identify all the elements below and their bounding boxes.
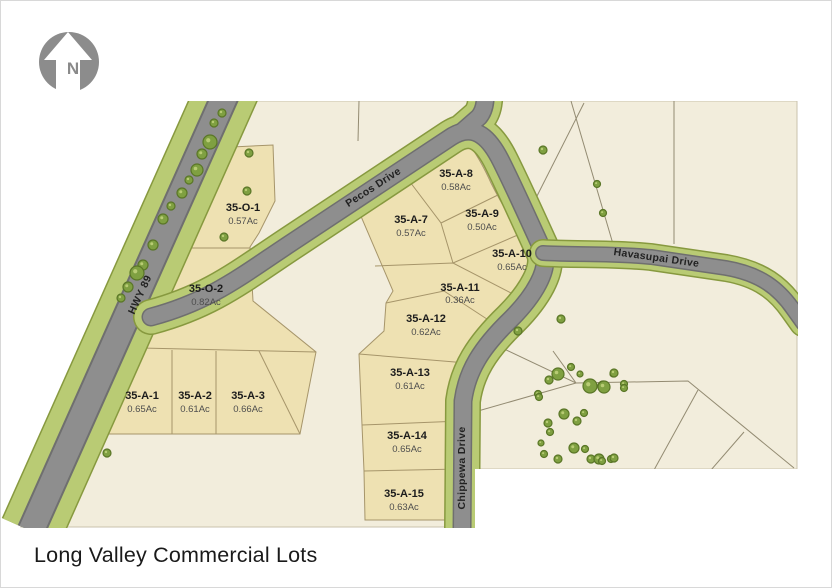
lot-acreage: 0.61Ac bbox=[180, 404, 210, 415]
lot-label: 35-O-1 bbox=[226, 202, 260, 214]
tree-icon bbox=[568, 364, 575, 371]
tree-highlight bbox=[516, 329, 518, 331]
tree-icon bbox=[220, 233, 228, 241]
lot-label: 35-A-1 bbox=[125, 390, 159, 402]
lot-label: 35-A-14 bbox=[387, 430, 428, 442]
lot-label: 35-A-12 bbox=[406, 313, 446, 325]
lot-label: 35-A-8 bbox=[439, 168, 473, 180]
tree-icon bbox=[536, 394, 543, 401]
tree-highlight bbox=[169, 204, 171, 206]
north-arrow-letter: N bbox=[67, 59, 79, 78]
tree-highlight bbox=[583, 447, 585, 449]
tree-highlight bbox=[212, 121, 214, 123]
tree-highlight bbox=[222, 235, 224, 237]
tree-highlight bbox=[586, 382, 590, 386]
tree-icon bbox=[538, 440, 544, 446]
lot-label: 35-O-2 bbox=[189, 283, 223, 295]
tree-icon bbox=[559, 409, 569, 419]
tree-highlight bbox=[125, 284, 128, 287]
plat-map: 35-O-1 0.57Ac 35-O-2 0.82Ac 35-A-1 0.65A… bbox=[1, 1, 832, 588]
tree-highlight bbox=[595, 182, 597, 184]
tree-highlight bbox=[569, 365, 571, 367]
tree-icon bbox=[117, 294, 125, 302]
tree-highlight bbox=[622, 382, 624, 384]
tree-icon bbox=[621, 385, 628, 392]
lot-acreage: 0.36Ac bbox=[445, 295, 475, 306]
tree-icon bbox=[610, 454, 618, 462]
lot-label: 35-A-10 bbox=[492, 248, 532, 260]
lot-acreage: 0.65Ac bbox=[497, 262, 527, 273]
tree-icon bbox=[541, 451, 548, 458]
tree-icon bbox=[210, 119, 218, 127]
tree-highlight bbox=[539, 441, 541, 443]
tree-highlight bbox=[546, 421, 548, 423]
tree-highlight bbox=[206, 138, 210, 142]
lot-acreage: 0.61Ac bbox=[395, 381, 425, 392]
lot-acreage: 0.57Ac bbox=[228, 216, 258, 227]
tree-icon bbox=[554, 455, 562, 463]
tree-icon bbox=[243, 187, 251, 195]
tree-highlight bbox=[578, 372, 580, 374]
lot-label: 35-A-7 bbox=[394, 214, 428, 226]
tree-highlight bbox=[140, 262, 143, 265]
tree-highlight bbox=[548, 430, 550, 432]
plat-map-page: 35-O-1 0.57Ac 35-O-2 0.82Ac 35-A-1 0.65A… bbox=[0, 0, 832, 588]
tree-icon bbox=[599, 458, 606, 465]
lot-acreage: 0.57Ac bbox=[396, 228, 426, 239]
tree-highlight bbox=[187, 178, 189, 180]
lot-label: 35-A-3 bbox=[231, 390, 265, 402]
tree-highlight bbox=[612, 371, 614, 373]
tree-highlight bbox=[247, 151, 249, 153]
tree-icon bbox=[103, 449, 111, 457]
map-title: Long Valley Commercial Lots bbox=[34, 543, 317, 568]
tree-icon bbox=[547, 429, 554, 436]
tree-icon bbox=[191, 164, 203, 176]
tree-highlight bbox=[559, 317, 561, 319]
tree-highlight bbox=[600, 459, 602, 461]
lot-acreage: 0.82Ac bbox=[191, 297, 221, 308]
lot-acreage: 0.62Ac bbox=[411, 327, 441, 338]
tree-icon bbox=[197, 149, 207, 159]
tree-icon bbox=[123, 282, 133, 292]
tree-highlight bbox=[601, 384, 605, 388]
tree-highlight bbox=[133, 269, 137, 273]
tree-highlight bbox=[160, 216, 163, 219]
lot-acreage: 0.66Ac bbox=[233, 404, 263, 415]
tree-icon bbox=[203, 135, 217, 149]
tree-icon bbox=[552, 368, 564, 380]
tree-icon bbox=[514, 327, 522, 335]
north-arrow: N bbox=[39, 32, 99, 92]
lot-acreage: 0.58Ac bbox=[441, 182, 471, 193]
tree-highlight bbox=[571, 445, 574, 448]
tree-highlight bbox=[245, 189, 247, 191]
tree-icon bbox=[177, 188, 187, 198]
tree-icon bbox=[245, 149, 253, 157]
tree-highlight bbox=[199, 151, 202, 154]
tree-icon bbox=[610, 369, 618, 377]
tree-icon bbox=[573, 417, 581, 425]
tree-icon bbox=[598, 381, 610, 393]
tree-highlight bbox=[622, 386, 624, 388]
tree-highlight bbox=[542, 452, 544, 454]
tree-highlight bbox=[555, 371, 559, 375]
tree-icon bbox=[185, 176, 193, 184]
tree-highlight bbox=[561, 411, 564, 414]
lot-label: 35-A-15 bbox=[384, 488, 424, 500]
lot-label: 35-A-13 bbox=[390, 367, 430, 379]
tree-icon bbox=[577, 371, 583, 377]
tree-highlight bbox=[575, 419, 577, 421]
tree-highlight bbox=[601, 211, 603, 213]
lot-acreage: 0.65Ac bbox=[392, 444, 422, 455]
tree-highlight bbox=[537, 395, 539, 397]
tree-icon bbox=[594, 181, 601, 188]
tree-icon bbox=[148, 240, 158, 250]
lot-acreage: 0.63Ac bbox=[389, 502, 419, 513]
tree-highlight bbox=[194, 167, 198, 171]
tree-highlight bbox=[150, 242, 153, 245]
tree-highlight bbox=[556, 457, 558, 459]
road-label-chippewa-drive: Chippewa Drive bbox=[456, 427, 468, 510]
tree-highlight bbox=[589, 457, 591, 459]
tree-highlight bbox=[547, 378, 549, 380]
tree-icon bbox=[545, 376, 553, 384]
tree-icon bbox=[218, 109, 226, 117]
tree-icon bbox=[557, 315, 565, 323]
tree-icon bbox=[539, 146, 547, 154]
tree-icon bbox=[600, 210, 607, 217]
tree-icon bbox=[582, 446, 589, 453]
tree-highlight bbox=[541, 148, 543, 150]
tree-highlight bbox=[119, 296, 121, 298]
lot-acreage: 0.65Ac bbox=[127, 404, 157, 415]
tree-icon bbox=[167, 202, 175, 210]
tree-highlight bbox=[105, 451, 107, 453]
tree-icon bbox=[583, 379, 597, 393]
lot-label: 35-A-11 bbox=[440, 282, 479, 294]
lot-label: 35-A-9 bbox=[465, 208, 499, 220]
tree-highlight bbox=[612, 456, 614, 458]
tree-highlight bbox=[220, 111, 222, 113]
tree-icon bbox=[544, 419, 552, 427]
tree-icon bbox=[158, 214, 168, 224]
tree-icon bbox=[569, 443, 579, 453]
tree-icon bbox=[581, 410, 588, 417]
tree-highlight bbox=[179, 190, 182, 193]
lot-acreage: 0.50Ac bbox=[467, 222, 497, 233]
tree-highlight bbox=[582, 411, 584, 413]
lot-label: 35-A-2 bbox=[178, 390, 212, 402]
